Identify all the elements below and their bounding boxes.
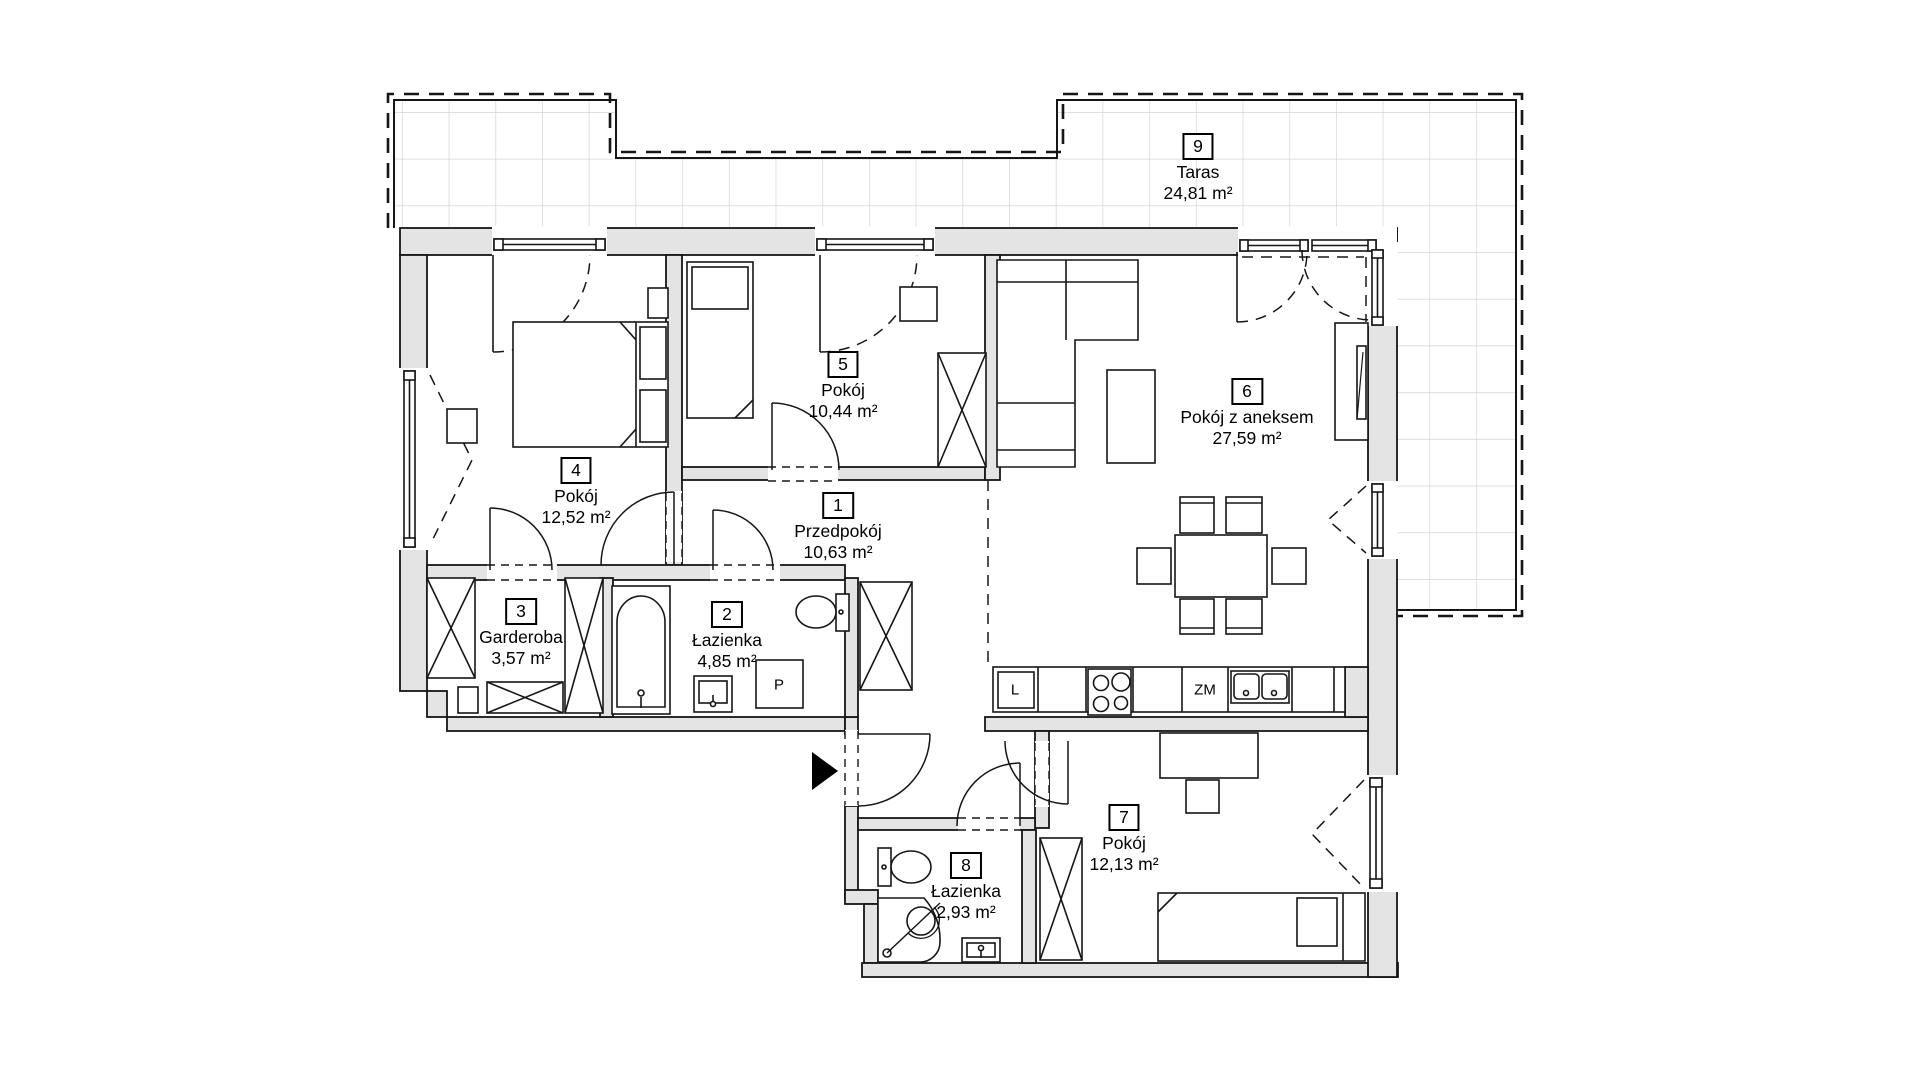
room-number-badge: 9 (1182, 133, 1214, 160)
room-number-badge: 4 (560, 457, 592, 484)
room-number-badge: 5 (827, 351, 859, 378)
room-area: 3,57 m² (479, 648, 563, 669)
room-number-badge: 3 (505, 598, 537, 625)
room-number-badge: 7 (1108, 804, 1140, 831)
dishwasher-label: ZM (1194, 682, 1216, 699)
room-label-pokoj-4: 4 Pokój 12,52 m² (541, 457, 610, 528)
washing-machine-label: P (774, 677, 784, 694)
room-number-badge: 8 (950, 852, 982, 879)
room-name: Pokój (808, 380, 877, 401)
room-name: Pokój z aneksem (1180, 407, 1313, 428)
room-area: 10,63 m² (794, 542, 882, 563)
side-table (900, 287, 937, 321)
room-label-garderoba: 3 Garderoba 3,57 m² (479, 598, 563, 669)
room-name: Łazienka (692, 630, 762, 651)
room-area: 27,59 m² (1180, 428, 1313, 449)
wardrobe (1040, 838, 1082, 960)
wardrobe (860, 582, 912, 690)
room-name: Pokój (541, 486, 610, 507)
bed-double (513, 322, 668, 447)
room-label-lazienka-2: 2 Łazienka 4,85 m² (692, 601, 762, 672)
room-number-badge: 2 (711, 601, 743, 628)
room-label-lazienka-8: 8 Łazienka 2,93 m² (931, 852, 1001, 923)
room-area: 10,44 m² (808, 401, 877, 422)
chair (1186, 780, 1219, 813)
room-name: Pokój (1089, 833, 1158, 854)
room-label-przedpokoj: 1 Przedpokój 10,63 m² (794, 492, 882, 563)
room-label-pokoj-7: 7 Pokój 12,13 m² (1089, 804, 1158, 875)
stove-icon (1088, 669, 1131, 715)
room-area: 12,52 m² (541, 507, 610, 528)
wardrobe (938, 353, 986, 467)
room-number-badge: 1 (822, 492, 854, 519)
coffee-table (1107, 370, 1155, 463)
room-area: 4,85 m² (692, 651, 762, 672)
room-name: Łazienka (931, 881, 1001, 902)
room-area: 24,81 m² (1163, 183, 1232, 204)
floor-plan-page: 1 Przedpokój 10,63 m² 2 Łazienka 4,85 m²… (0, 0, 1920, 1080)
fridge-label: L (1011, 682, 1019, 699)
bathtub-icon (612, 586, 670, 714)
room-name: Taras (1163, 162, 1232, 183)
nightstand (648, 288, 668, 318)
room-label-taras: 9 Taras 24,81 m² (1163, 133, 1232, 204)
sink-icon (962, 938, 1000, 962)
entrance-arrow-icon (812, 752, 838, 790)
room-label-pokoj-5: 5 Pokój 10,44 m² (808, 351, 877, 422)
bed-single (687, 262, 753, 418)
kitchen-counter (993, 667, 1345, 715)
desk (1160, 733, 1258, 778)
room-name: Garderoba (479, 627, 563, 648)
kitchen-sink-icon (1231, 671, 1289, 703)
room-number-badge: 6 (1231, 378, 1263, 405)
room-area: 2,93 m² (931, 902, 1001, 923)
nightstand (447, 409, 477, 443)
bed-single (1158, 893, 1365, 961)
toilet-icon (796, 594, 849, 631)
dining-table-set (1137, 497, 1306, 634)
toilet-icon (878, 848, 931, 886)
room-name: Przedpokój (794, 521, 882, 542)
tv-cabinet (1335, 323, 1368, 440)
sink-icon (694, 676, 732, 712)
room-area: 12,13 m² (1089, 854, 1158, 875)
room-label-pokoj-z-aneksem: 6 Pokój z aneksem 27,59 m² (1180, 378, 1313, 449)
